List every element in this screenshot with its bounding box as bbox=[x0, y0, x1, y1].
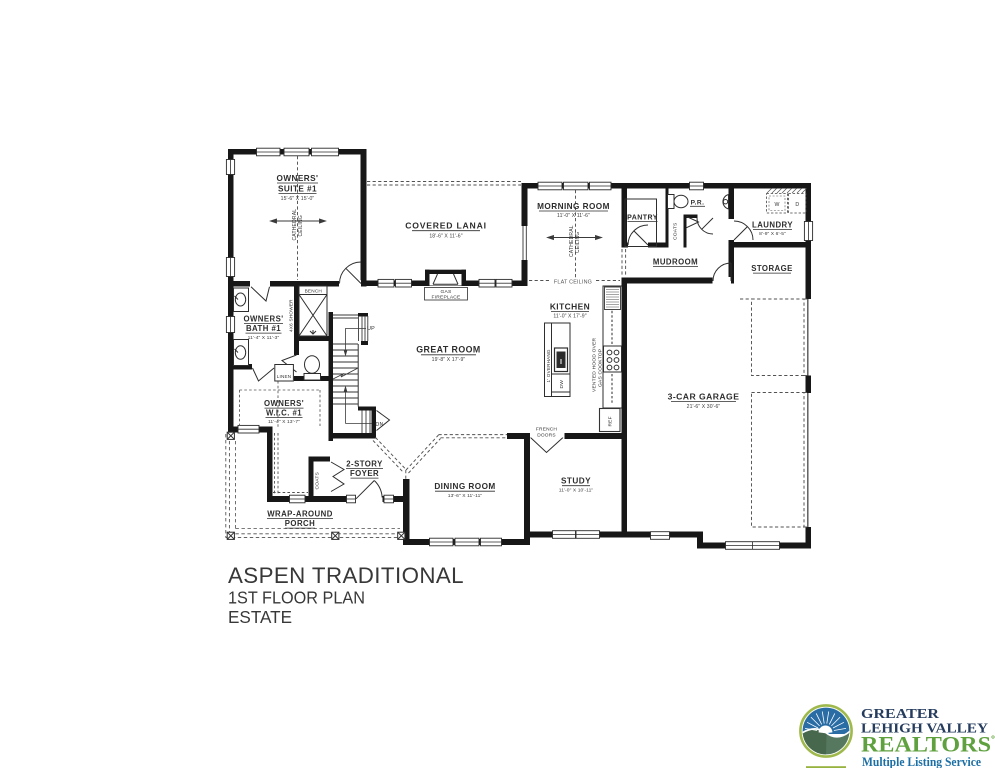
svg-text:W: W bbox=[774, 202, 779, 208]
svg-text:COVERED LANAI: COVERED LANAI bbox=[405, 221, 487, 231]
svg-text:LAUNDRY: LAUNDRY bbox=[752, 221, 793, 230]
svg-text:DW: DW bbox=[559, 380, 565, 389]
svg-text:15'-6" X 15'-0": 15'-6" X 15'-0" bbox=[281, 196, 315, 202]
svg-text:STORAGE: STORAGE bbox=[751, 264, 793, 273]
svg-text:D: D bbox=[795, 202, 799, 208]
svg-text:11'-0" X 11'-6": 11'-0" X 11'-6" bbox=[557, 213, 590, 219]
svg-text:CEILING: CEILING bbox=[298, 215, 304, 236]
svg-text:FIREPLACE: FIREPLACE bbox=[432, 294, 462, 300]
svg-text:OWNERS': OWNERS' bbox=[277, 174, 319, 183]
svg-text:19'-8" X 17'-9": 19'-8" X 17'-9" bbox=[432, 357, 466, 363]
svg-text:3-CAR GARAGE: 3-CAR GARAGE bbox=[668, 391, 740, 401]
svg-text:FOYER: FOYER bbox=[350, 469, 379, 478]
svg-text:DINING ROOM: DINING ROOM bbox=[434, 482, 495, 491]
svg-text:PORCH: PORCH bbox=[285, 519, 315, 528]
svg-text:STUDY: STUDY bbox=[561, 477, 591, 486]
svg-text:18'-6" X 11'-6": 18'-6" X 11'-6" bbox=[429, 234, 462, 240]
svg-text:BENCH: BENCH bbox=[305, 289, 322, 294]
svg-text:21'-6" X 30'-6": 21'-6" X 30'-6" bbox=[687, 404, 721, 410]
svg-text:11'-4" X 13'-7": 11'-4" X 13'-7" bbox=[268, 419, 300, 425]
svg-text:11'-0" X 10'-11": 11'-0" X 10'-11" bbox=[559, 488, 594, 494]
svg-text:ESTATE: ESTATE bbox=[228, 607, 292, 627]
svg-text:W.I.C. #1: W.I.C. #1 bbox=[266, 409, 302, 418]
svg-text:CEILING: CEILING bbox=[575, 232, 581, 253]
svg-text:1ST FLOOR PLAN: 1ST FLOOR PLAN bbox=[228, 588, 365, 608]
svg-text:OWNERS': OWNERS' bbox=[264, 399, 304, 408]
svg-text:GAS COOKTOP: GAS COOKTOP bbox=[598, 349, 604, 387]
svg-text:KITCHEN: KITCHEN bbox=[550, 301, 590, 311]
svg-text:COATS: COATS bbox=[314, 471, 320, 489]
svg-text:UP: UP bbox=[367, 326, 375, 332]
svg-text:FLAT CEILING: FLAT CEILING bbox=[554, 280, 592, 286]
svg-text:11'-0" X 17'-9": 11'-0" X 17'-9" bbox=[553, 314, 586, 320]
svg-text:FRENCH: FRENCH bbox=[536, 427, 558, 433]
svg-text:OWNERS': OWNERS' bbox=[243, 315, 283, 324]
svg-text:MUDROOM: MUDROOM bbox=[653, 258, 698, 267]
svg-text:4X6 SHOWER: 4X6 SHOWER bbox=[288, 299, 293, 332]
svg-text:GREAT ROOM: GREAT ROOM bbox=[416, 345, 480, 355]
svg-text:COATS: COATS bbox=[673, 222, 679, 240]
svg-text:2-STORY: 2-STORY bbox=[346, 460, 383, 469]
svg-text:DN: DN bbox=[375, 422, 383, 428]
svg-text:SUITE #1: SUITE #1 bbox=[278, 185, 317, 194]
svg-text:BATH #1: BATH #1 bbox=[246, 324, 281, 333]
svg-text:11'-4" X 11'-3": 11'-4" X 11'-3" bbox=[248, 335, 280, 341]
svg-text:GAS: GAS bbox=[441, 289, 452, 295]
svg-text:13'-6" X 11'-11": 13'-6" X 11'-11" bbox=[448, 493, 483, 499]
svg-text:WRAP-AROUND: WRAP-AROUND bbox=[267, 510, 333, 519]
svg-text:REF: REF bbox=[608, 416, 614, 426]
svg-text:LINEN: LINEN bbox=[277, 374, 292, 379]
svg-text:P.R.: P.R. bbox=[691, 199, 705, 206]
svg-text:MORNING ROOM: MORNING ROOM bbox=[537, 202, 610, 211]
svg-text:PANTRY: PANTRY bbox=[627, 214, 658, 221]
svg-text:GREATER: GREATER bbox=[861, 707, 940, 722]
svg-text:1' OVERHANG: 1' OVERHANG bbox=[546, 349, 551, 382]
svg-text:DOORS: DOORS bbox=[537, 432, 556, 438]
svg-text:REALTORS: REALTORS bbox=[861, 732, 991, 757]
svg-text:ASPEN TRADITIONAL: ASPEN TRADITIONAL bbox=[228, 563, 464, 588]
svg-text:Multiple Listing Service: Multiple Listing Service bbox=[862, 755, 981, 768]
svg-text:VENTED HOOD OVER: VENTED HOOD OVER bbox=[591, 337, 597, 392]
svg-text:8'-9" X 6'-5": 8'-9" X 6'-5" bbox=[759, 231, 786, 237]
